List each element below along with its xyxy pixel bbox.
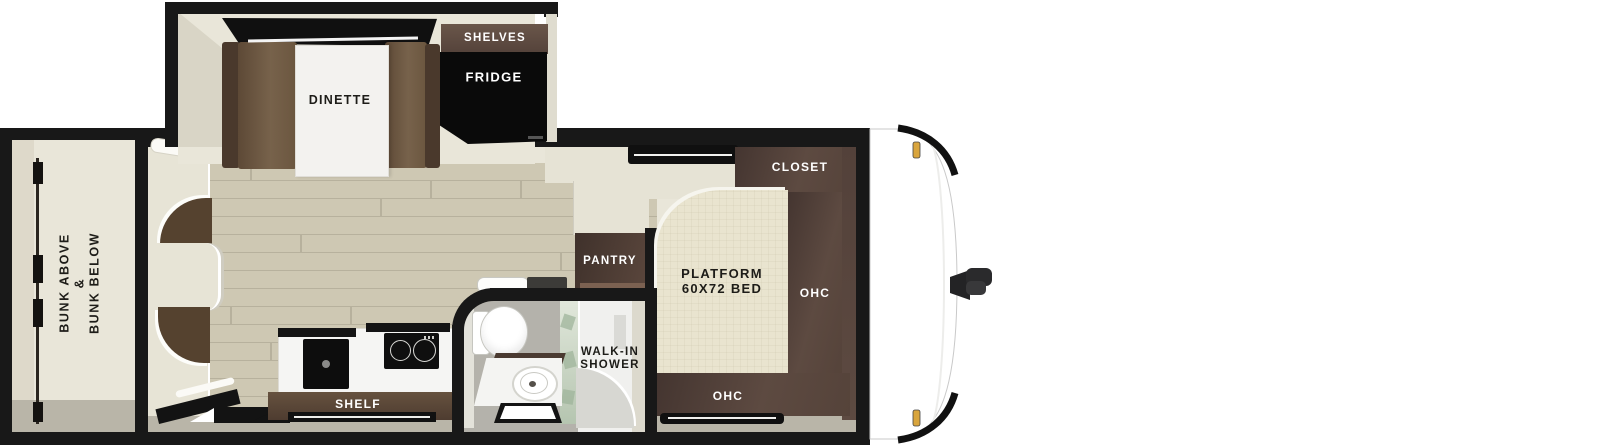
dinette-table	[295, 45, 389, 177]
bunk-hinge	[33, 299, 43, 327]
ohc-bottom	[657, 373, 850, 416]
dinette-bench-left	[238, 42, 297, 169]
pantry-cabinet-top	[573, 181, 649, 235]
shower-niche	[614, 315, 626, 349]
plank-joint	[520, 181, 522, 198]
rear-bottom-window-line	[668, 417, 776, 419]
bed-label-line1: PLATFORM	[681, 266, 763, 281]
floorplan: BUNK ABOVE & BUNK BELOW SHELF	[0, 0, 1600, 445]
fridge-handle	[528, 136, 543, 139]
glass-shard	[561, 389, 575, 405]
dinette-bench-right-side	[425, 44, 440, 168]
cooktop-burner-left	[390, 340, 411, 361]
bunk-label-line3: BUNK BELOW	[88, 232, 103, 334]
walkin-shower-label: WALK-IN SHOWER	[580, 346, 640, 372]
bunk-room-grey-floor	[12, 400, 135, 432]
bunk-room-wall-shade	[12, 140, 34, 432]
bunk-label-line1: BUNK ABOVE	[58, 232, 73, 334]
slideout-top-wall	[165, 2, 558, 14]
plank-joint	[270, 343, 272, 360]
shower-label-line1: WALK-IN	[580, 346, 640, 359]
bunk-frame-line	[36, 158, 39, 424]
under-shelf-rail-line	[294, 416, 430, 418]
clearance-light-bottom	[913, 410, 920, 426]
sink-drain-dot	[529, 381, 536, 387]
plank-joint	[560, 253, 562, 270]
plank-joint	[300, 235, 302, 252]
dinette-bench-right	[385, 42, 427, 168]
bunk-label-line2: &	[73, 232, 88, 334]
bathroom-right-wall	[645, 288, 657, 432]
shelf-label: SHELF	[335, 397, 381, 411]
closet-label: CLOSET	[772, 160, 828, 174]
ohc-right	[788, 192, 842, 377]
ohc-right-label: OHC	[800, 286, 831, 300]
shower-label-line2: SHOWER	[580, 359, 640, 372]
bunk-hinge	[33, 162, 43, 184]
pantry-label: PANTRY	[583, 255, 637, 267]
bunk-hinge	[33, 255, 43, 283]
bunk-room-label: BUNK ABOVE & BUNK BELOW	[58, 232, 103, 334]
front-cap	[862, 123, 1007, 445]
counter-edge-right	[366, 323, 450, 332]
cooktop-burner-right	[413, 339, 436, 362]
ohc-bottom-label: OHC	[713, 389, 744, 403]
cooktop-controls	[424, 336, 436, 339]
plank-joint	[430, 181, 432, 198]
bathroom-left-wall	[452, 325, 464, 432]
bed-label: PLATFORM 60X72 BED	[681, 266, 763, 296]
plank-joint	[230, 307, 232, 324]
counter-edge-left	[278, 328, 356, 337]
sink-drain	[322, 360, 330, 368]
slideout-left-wall	[165, 2, 178, 147]
shelves-label: SHELVES	[464, 32, 526, 44]
bed-label-line2: 60X72 BED	[681, 281, 763, 296]
bunk-hinge	[33, 402, 43, 422]
plank-joint	[350, 307, 352, 324]
bedroom-window-line	[634, 154, 732, 156]
bath-mat	[500, 406, 556, 419]
dinette-label: DINETTE	[309, 93, 372, 107]
plank-joint	[380, 199, 382, 216]
clearance-light-top	[913, 142, 920, 158]
fridge	[440, 52, 547, 144]
side-bunk-step	[148, 243, 221, 311]
toilet-bowl	[480, 306, 528, 358]
fridge-label: FRIDGE	[466, 70, 523, 85]
hitch-knob-lower	[966, 281, 986, 295]
bathroom-top-wall	[490, 288, 657, 301]
